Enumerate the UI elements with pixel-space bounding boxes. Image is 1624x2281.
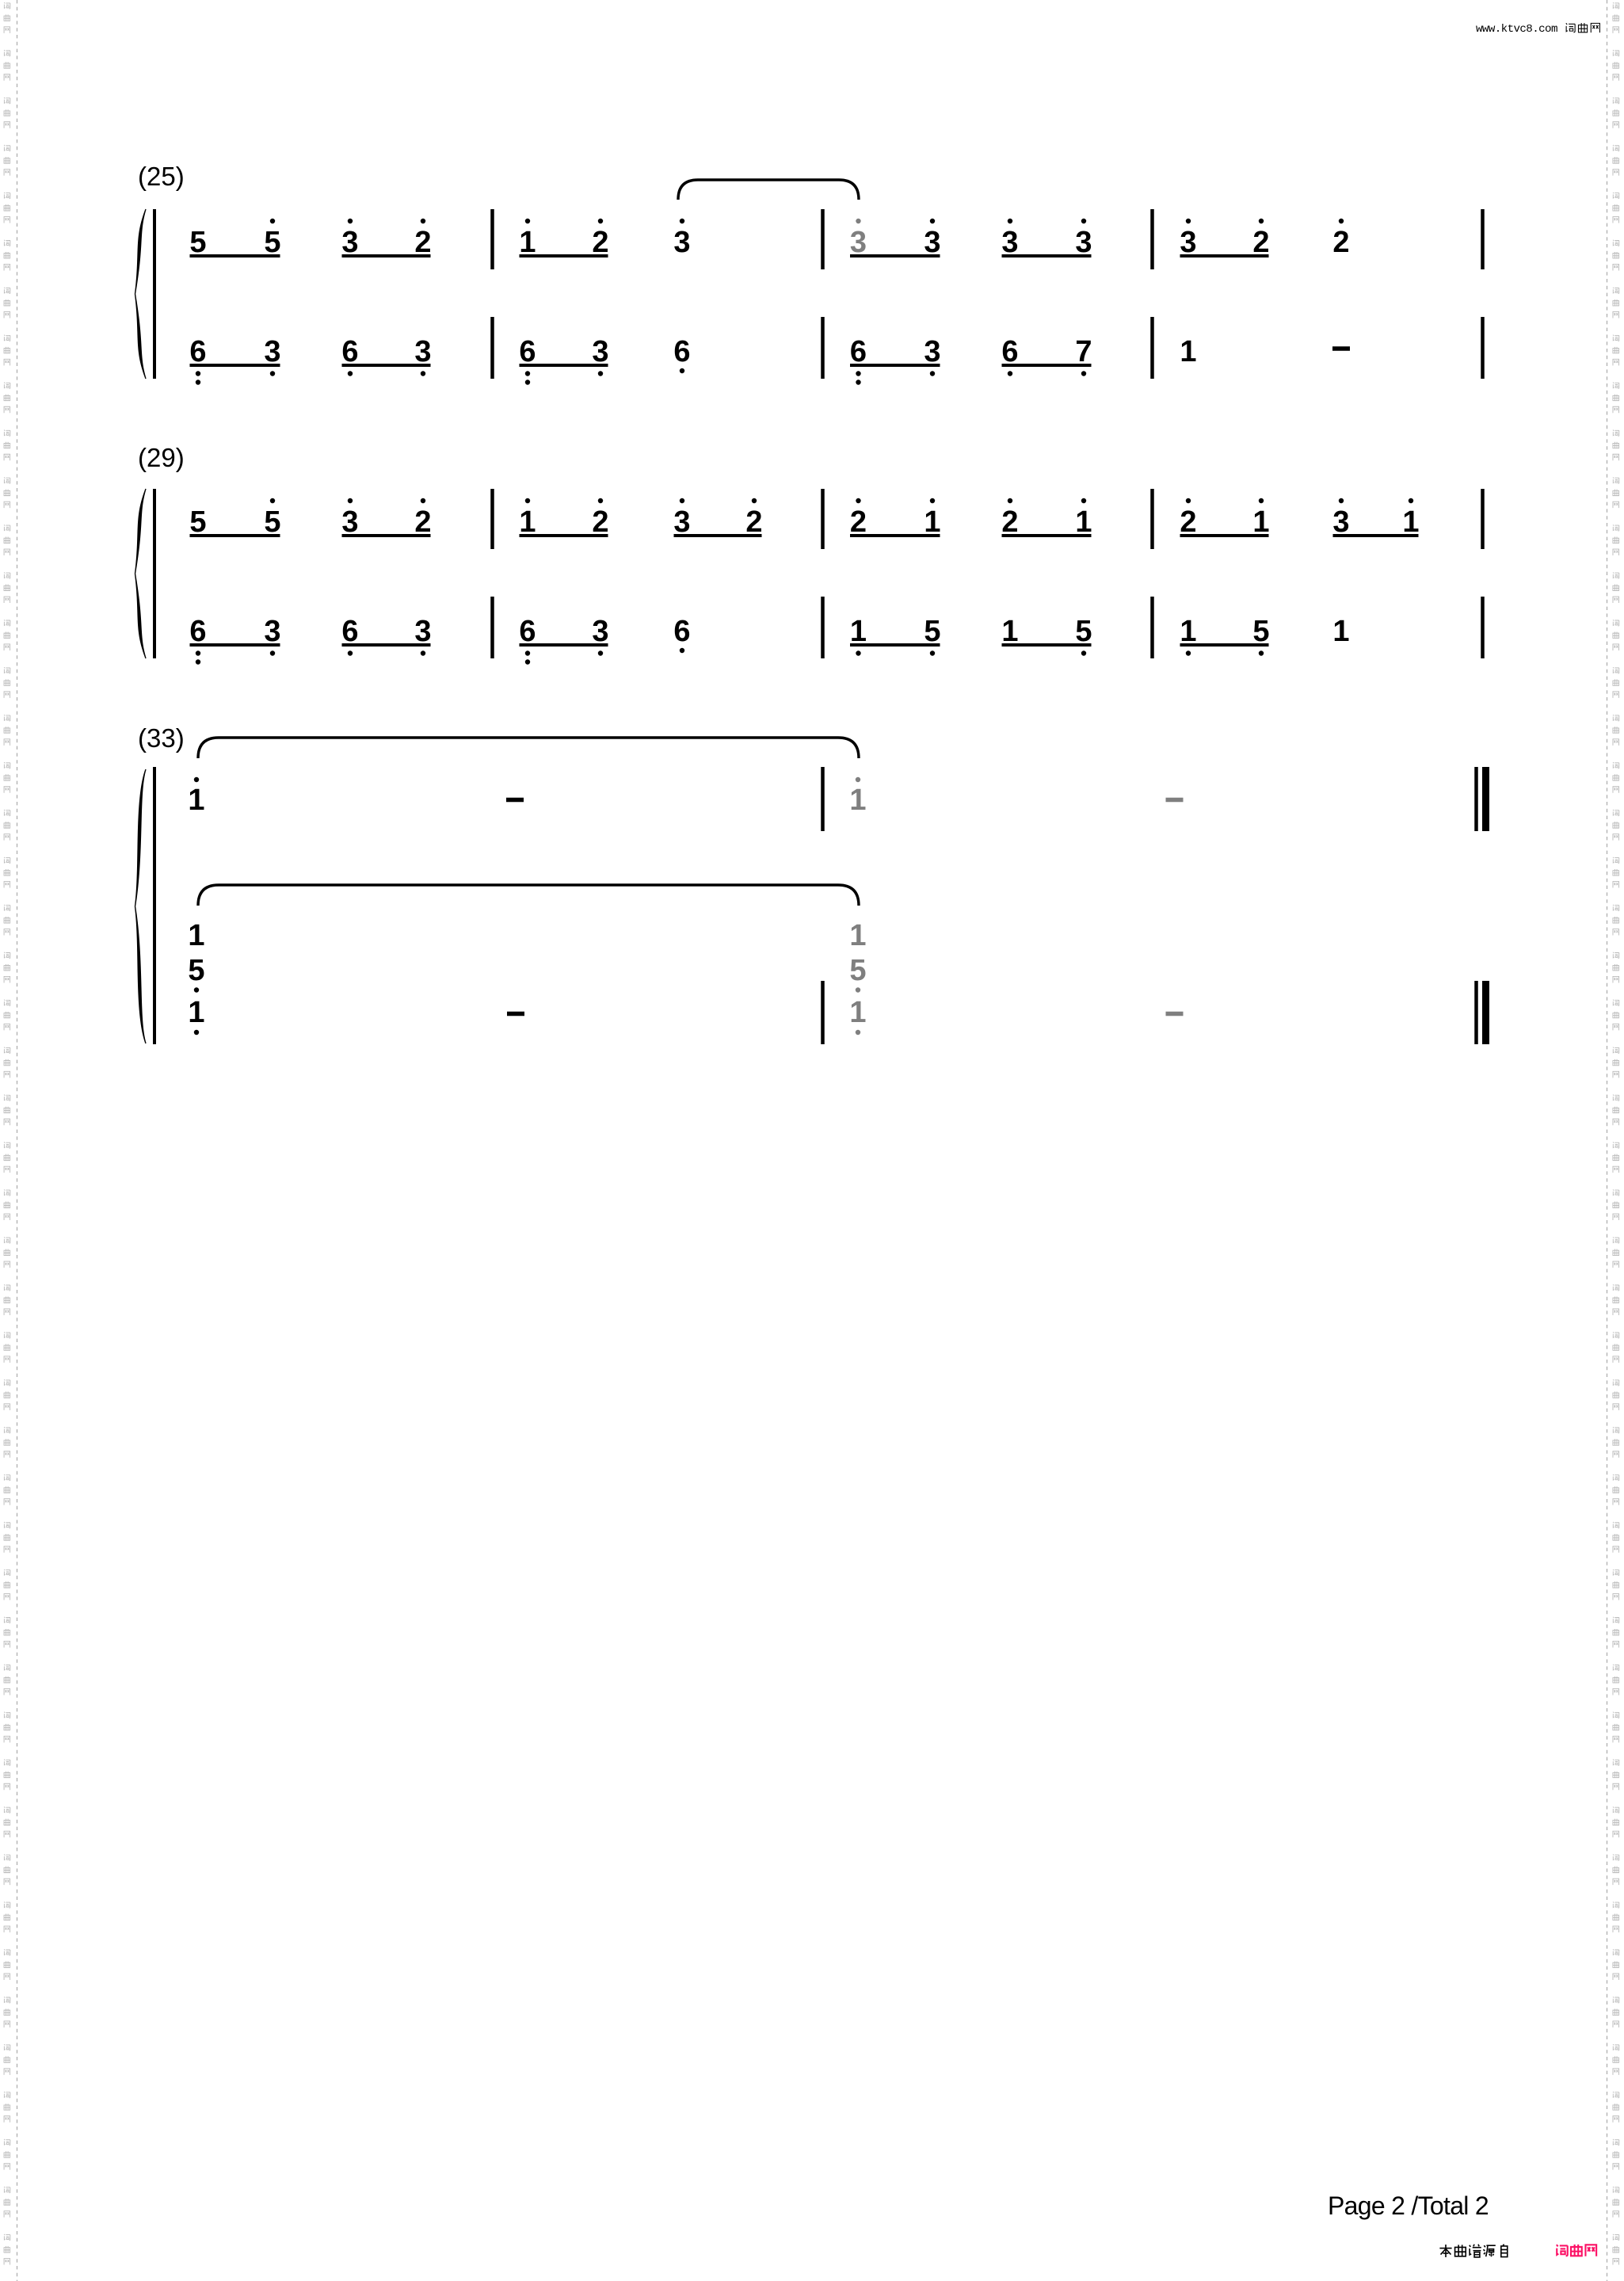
svg-text:3: 3 [414, 335, 431, 368]
svg-text:2: 2 [1332, 226, 1349, 259]
svg-text:6: 6 [850, 335, 867, 368]
svg-text:6: 6 [673, 615, 690, 648]
svg-text:2: 2 [850, 505, 867, 539]
svg-text:5: 5 [1252, 615, 1269, 648]
svg-text:5: 5 [1075, 615, 1092, 648]
svg-text:6: 6 [189, 335, 206, 368]
svg-text:1: 1 [1252, 505, 1269, 539]
svg-text:3: 3 [264, 335, 280, 368]
svg-text:5: 5 [924, 615, 940, 648]
svg-text:6: 6 [1001, 335, 1018, 368]
svg-text:2: 2 [414, 505, 431, 539]
svg-text:(33): (33) [138, 723, 185, 753]
svg-text:2: 2 [1001, 505, 1018, 539]
svg-text:2: 2 [1180, 505, 1196, 539]
svg-text:5: 5 [264, 226, 280, 259]
svg-text:3: 3 [1180, 226, 1196, 259]
svg-text:6: 6 [341, 615, 358, 648]
svg-text:1: 1 [1001, 615, 1018, 648]
svg-text:5: 5 [189, 226, 206, 259]
svg-text:3: 3 [341, 226, 358, 259]
svg-text:5: 5 [849, 954, 866, 987]
svg-text:3: 3 [850, 226, 867, 259]
svg-text:5: 5 [189, 505, 206, 539]
svg-text:3: 3 [673, 226, 690, 259]
svg-text:6: 6 [519, 615, 536, 648]
svg-text:6: 6 [189, 615, 206, 648]
svg-text:2: 2 [592, 505, 608, 539]
svg-text:1: 1 [519, 505, 536, 539]
svg-text:3: 3 [673, 505, 690, 539]
svg-text:(25): (25) [138, 162, 185, 191]
svg-text:6: 6 [673, 335, 690, 368]
svg-text:1: 1 [519, 226, 536, 259]
svg-text:7: 7 [1075, 335, 1092, 368]
svg-text:1: 1 [849, 919, 866, 952]
svg-text:3: 3 [592, 335, 608, 368]
svg-text:1: 1 [1402, 505, 1419, 539]
svg-text:3: 3 [264, 615, 280, 648]
svg-text:1: 1 [849, 996, 866, 1029]
svg-text:2: 2 [414, 226, 431, 259]
svg-text:3: 3 [1332, 505, 1349, 539]
svg-text:6: 6 [519, 335, 536, 368]
svg-text:3: 3 [341, 505, 358, 539]
svg-text:1: 1 [188, 996, 204, 1029]
svg-text:3: 3 [924, 335, 940, 368]
svg-text:1: 1 [850, 615, 867, 648]
svg-text:5: 5 [188, 954, 204, 987]
svg-text:(29): (29) [138, 443, 185, 472]
svg-text:2: 2 [1252, 226, 1269, 259]
svg-text:1: 1 [924, 505, 940, 539]
svg-text:1: 1 [1075, 505, 1092, 539]
svg-text:1: 1 [1180, 615, 1196, 648]
svg-text:3: 3 [414, 615, 431, 648]
svg-text:Page 2 /Total 2: Page 2 /Total 2 [1328, 2191, 1489, 2220]
svg-text:1: 1 [1180, 335, 1196, 368]
svg-text:5: 5 [264, 505, 280, 539]
svg-text:3: 3 [592, 615, 608, 648]
svg-text:3: 3 [1075, 226, 1092, 259]
svg-text:3: 3 [924, 226, 940, 259]
svg-text:2: 2 [592, 226, 608, 259]
svg-text:1: 1 [849, 784, 866, 817]
svg-text:www.ktvc8.com: www.ktvc8.com [1476, 23, 1557, 36]
svg-text:1: 1 [188, 919, 204, 952]
svg-text:2: 2 [745, 505, 762, 539]
svg-text:6: 6 [341, 335, 358, 368]
svg-text:1: 1 [1332, 615, 1349, 648]
svg-text:3: 3 [1001, 226, 1018, 259]
svg-text:1: 1 [188, 784, 204, 817]
